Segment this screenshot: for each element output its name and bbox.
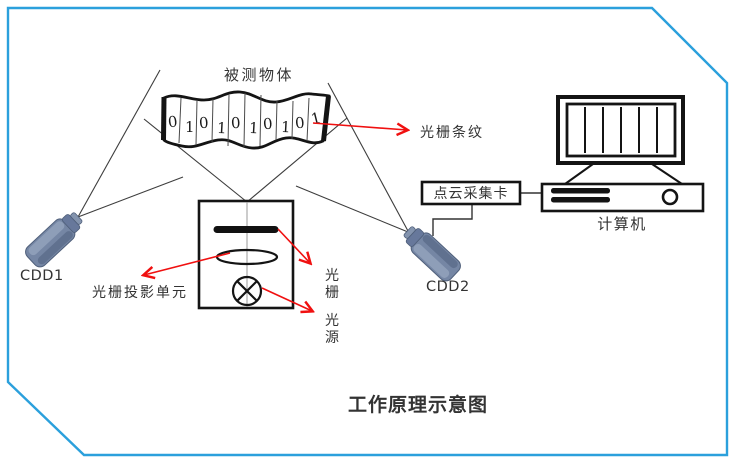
pattern-digit: 0 [198,114,209,133]
label-light-source-char2: 源 [325,330,341,346]
case-slot [551,188,610,194]
pattern-digit: 1 [217,119,227,137]
computer-icon [542,97,703,211]
pattern-digit: 1 [185,118,195,136]
diagram-canvas: 0 1 0 1 0 1 0 1 0 1 被测物体 CDD1 [0,0,738,467]
label-ccd1: CDD1 [20,268,64,284]
projection-unit-box [199,201,293,308]
label-computer: 计算机 [597,215,647,233]
monitor-stand [565,164,682,184]
diagram-title: 工作原理示意图 [348,393,488,416]
label-ccd2: CDD2 [426,279,470,295]
label-point-cloud-card: 点云采集卡 [434,185,509,202]
ccd2-camera-icon [399,222,463,284]
pattern-digit: 1 [281,118,291,136]
measured-object-banner: 0 1 0 1 0 1 0 1 0 1 [164,92,330,148]
ccd1-upper-sight-line [78,70,160,217]
card-to-ccd2-cable [433,204,472,236]
pattern-digit: 0 [262,115,273,134]
ccd2-lower-sight-line [296,186,408,232]
label-light-source-vertical: 光 源 [325,313,341,346]
label-grating-char2: 栅 [325,285,341,301]
ccd2-upper-sight-line [328,83,408,231]
label-measured-object: 被测物体 [224,66,294,84]
pattern-digit: 0 [167,112,178,131]
label-grating-stripes: 光栅条纹 [420,124,484,141]
label-projection-unit: 光栅投影单元 [92,285,188,301]
pattern-digit: 0 [231,114,241,132]
pattern-digit: 1 [249,119,259,137]
working-principle-diagram: 0 1 0 1 0 1 0 1 0 1 被测物体 CDD1 [0,0,738,467]
label-light-source-char1: 光 [325,313,341,329]
case-slot [551,197,610,203]
pattern-digit: 0 [294,114,305,133]
banner-left-bar [164,97,165,140]
ccd1-camera-icon [23,208,87,270]
label-grating-vertical: 光 栅 [325,268,341,301]
point-cloud-card-box: 点云采集卡 [422,182,520,204]
ccd1-lower-sight-line [78,177,183,217]
label-grating-char1: 光 [325,268,341,284]
